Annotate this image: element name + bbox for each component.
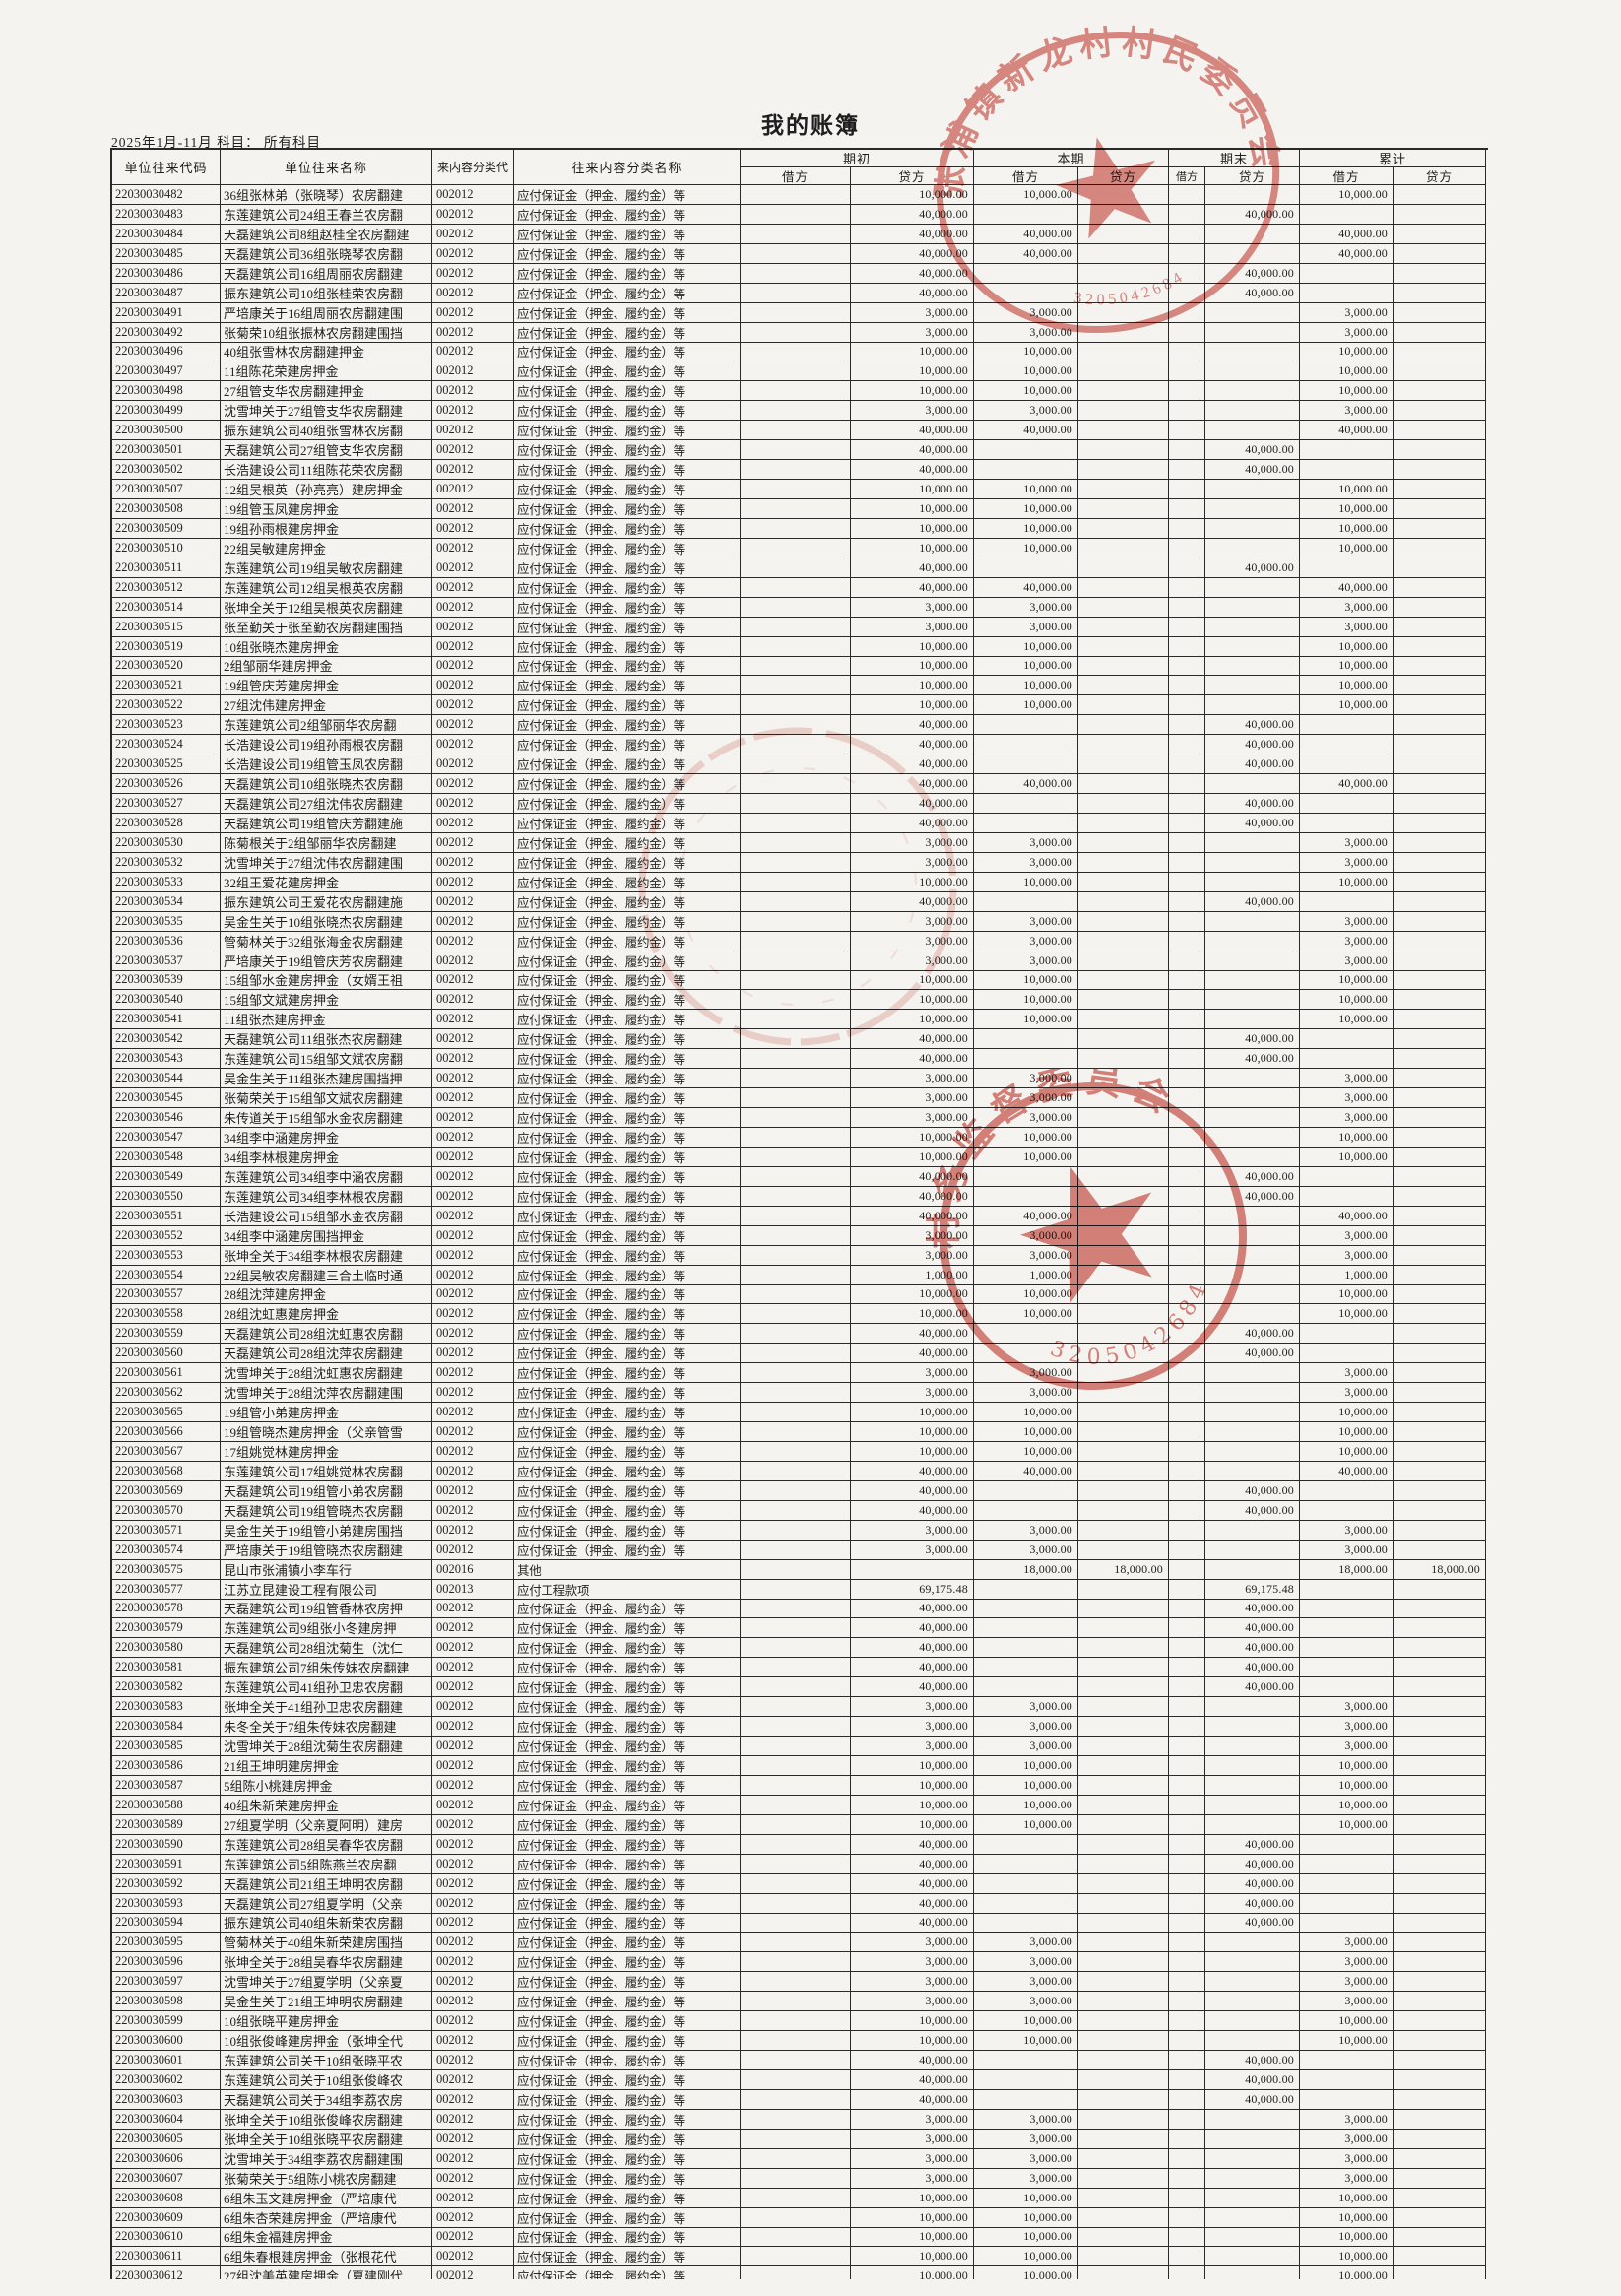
cell-unit-name: 朱传道关于15组邹水金农房翻建 bbox=[221, 1108, 432, 1128]
cell-ending-credit bbox=[1205, 932, 1300, 951]
cell-ending-debit bbox=[1169, 2149, 1205, 2169]
cell-cumulative-debit: 10,000.00 bbox=[1300, 990, 1394, 1010]
cell-opening-debit bbox=[741, 676, 851, 695]
col-header-cumulative-debit: 借方 bbox=[1300, 167, 1394, 185]
cell-ending-credit bbox=[1205, 1796, 1300, 1815]
cell-opening-debit bbox=[741, 2169, 851, 2189]
cell-ending-credit bbox=[1205, 2266, 1300, 2279]
cell-unit-code: 22030030568 bbox=[112, 1462, 221, 1481]
table-row: 22030030484天磊建筑公司8组赵桂全农房翻建002012应付保证金（押金… bbox=[112, 225, 1488, 244]
cell-current-debit: 3,000.00 bbox=[974, 303, 1078, 323]
cell-ending-debit bbox=[1169, 971, 1205, 991]
cell-ending-debit bbox=[1169, 1167, 1205, 1187]
cell-current-debit: 40,000.00 bbox=[974, 1462, 1078, 1481]
table-row: 22030030536管菊林关于32组张海金农房翻建002012应付保证金（押金… bbox=[112, 932, 1488, 951]
cell-class-name: 应付保证金（押金、履约金）等 bbox=[514, 381, 741, 401]
cell-opening-credit: 3,000.00 bbox=[851, 833, 974, 853]
cell-ending-debit bbox=[1169, 932, 1205, 951]
cell-current-debit bbox=[974, 1049, 1078, 1069]
cell-class-name: 应付保证金（押金、履约金）等 bbox=[514, 1363, 741, 1383]
table-body: 2203003048236组张林弟（张晓琴）农房翻建002012应付保证金（押金… bbox=[112, 185, 1488, 2279]
cell-unit-name: 天磊建筑公司28组沈菊生（沈仁 bbox=[221, 1638, 432, 1658]
cell-class-code: 002012 bbox=[432, 421, 514, 440]
cell-cumulative-credit bbox=[1394, 695, 1486, 715]
cell-unit-name: 东莲建筑公司9组张小冬建房押 bbox=[221, 1618, 432, 1638]
cell-ending-credit: 40,000.00 bbox=[1205, 1894, 1300, 1914]
table-row: 220300306116组朱春根建房押金（张根花代002012应付保证金（押金、… bbox=[112, 2247, 1488, 2266]
cell-unit-code: 22030030575 bbox=[112, 1560, 221, 1580]
cell-current-debit: 10,000.00 bbox=[974, 1148, 1078, 1167]
cell-class-code: 002012 bbox=[432, 303, 514, 323]
cell-ending-debit bbox=[1169, 1108, 1205, 1128]
cell-cumulative-credit bbox=[1394, 264, 1486, 284]
cell-unit-name: 天磊建筑公司28组沈萍农房翻建 bbox=[221, 1344, 432, 1363]
cell-class-name: 应付保证金（押金、履约金）等 bbox=[514, 676, 741, 695]
cell-cumulative-credit bbox=[1394, 2208, 1486, 2228]
cell-unit-code: 22030030552 bbox=[112, 1226, 221, 1246]
cell-class-code: 002012 bbox=[432, 2090, 514, 2110]
cell-current-credit bbox=[1078, 618, 1169, 637]
cell-current-debit: 40,000.00 bbox=[974, 421, 1078, 440]
cell-class-name: 应付保证金（押金、履约金）等 bbox=[514, 2031, 741, 2051]
cell-opening-credit: 10,000.00 bbox=[851, 1285, 974, 1305]
cell-opening-debit bbox=[741, 1992, 851, 2011]
cell-ending-credit bbox=[1205, 1088, 1300, 1108]
cell-opening-debit bbox=[741, 1049, 851, 1069]
cell-ending-credit bbox=[1205, 1442, 1300, 1462]
cell-opening-credit: 3,000.00 bbox=[851, 401, 974, 421]
cell-unit-name: 10组张晓杰建房押金 bbox=[221, 637, 432, 657]
cell-class-name: 应付保证金（押金、履约金）等 bbox=[514, 715, 741, 735]
cell-cumulative-credit bbox=[1394, 2149, 1486, 2169]
cell-cumulative-debit: 3,000.00 bbox=[1300, 1972, 1394, 1992]
cell-ending-credit bbox=[1205, 1010, 1300, 1029]
cell-current-credit bbox=[1078, 1874, 1169, 1894]
cell-opening-debit bbox=[741, 2149, 851, 2169]
cell-unit-name: 27组沈美英建房押金（夏建刚代 bbox=[221, 2266, 432, 2279]
cell-cumulative-credit bbox=[1394, 2189, 1486, 2208]
cell-class-name: 应付保证金（押金、履约金）等 bbox=[514, 2266, 741, 2279]
cell-ending-credit: 40,000.00 bbox=[1205, 440, 1300, 460]
cell-current-credit bbox=[1078, 1344, 1169, 1363]
cell-ending-credit bbox=[1205, 499, 1300, 519]
cell-cumulative-debit: 40,000.00 bbox=[1300, 578, 1394, 598]
cell-unit-name: 22组吴敏建房押金 bbox=[221, 539, 432, 558]
cell-opening-debit bbox=[741, 2228, 851, 2248]
cell-unit-name: 吴金生关于11组张杰建房围挡押 bbox=[221, 1069, 432, 1088]
cell-opening-debit bbox=[741, 323, 851, 343]
cell-ending-credit: 40,000.00 bbox=[1205, 1874, 1300, 1894]
table-row: 22030030583张坤全关于41组孙卫忠农房翻建002012应付保证金（押金… bbox=[112, 1697, 1488, 1717]
cell-cumulative-debit: 40,000.00 bbox=[1300, 225, 1394, 244]
cell-ending-credit bbox=[1205, 2169, 1300, 2189]
cell-cumulative-credit bbox=[1394, 1363, 1486, 1383]
cell-class-code: 002012 bbox=[432, 2149, 514, 2169]
cell-unit-code: 22030030532 bbox=[112, 853, 221, 873]
cell-class-name: 应付保证金（押金、履约金）等 bbox=[514, 2110, 741, 2130]
cell-unit-code: 22030030534 bbox=[112, 892, 221, 912]
cell-cumulative-debit: 3,000.00 bbox=[1300, 1933, 1394, 1952]
cell-opening-credit: 40,000.00 bbox=[851, 558, 974, 578]
cell-cumulative-debit bbox=[1300, 1658, 1394, 1677]
cell-current-credit bbox=[1078, 421, 1169, 440]
cell-cumulative-credit bbox=[1394, 578, 1486, 598]
table-row: 22030030500振东建筑公司40组张雪林农房翻002012应付保证金（押金… bbox=[112, 421, 1488, 440]
cell-current-debit: 40,000.00 bbox=[974, 244, 1078, 264]
cell-unit-code: 22030030611 bbox=[112, 2247, 221, 2266]
cell-cumulative-debit bbox=[1300, 715, 1394, 735]
cell-current-debit: 3,000.00 bbox=[974, 932, 1078, 951]
cell-class-name: 应付保证金（押金、履约金）等 bbox=[514, 1638, 741, 1658]
cell-ending-credit bbox=[1205, 833, 1300, 853]
cell-current-debit: 10,000.00 bbox=[974, 361, 1078, 381]
cell-current-debit: 10,000.00 bbox=[974, 1815, 1078, 1835]
cell-class-code: 002012 bbox=[432, 794, 514, 814]
cell-opening-credit: 3,000.00 bbox=[851, 1226, 974, 1246]
cell-opening-debit bbox=[741, 1403, 851, 1422]
cell-current-credit bbox=[1078, 1835, 1169, 1855]
cell-opening-credit: 40,000.00 bbox=[851, 460, 974, 480]
cell-class-name: 应付保证金（押金、履约金）等 bbox=[514, 735, 741, 754]
cell-class-name: 应付保证金（押金、履约金）等 bbox=[514, 1952, 741, 1972]
cell-current-credit bbox=[1078, 323, 1169, 343]
cell-current-credit bbox=[1078, 598, 1169, 618]
cell-opening-credit: 40,000.00 bbox=[851, 225, 974, 244]
cell-current-credit bbox=[1078, 519, 1169, 539]
cell-class-name: 应付保证金（押金、履约金）等 bbox=[514, 1796, 741, 1815]
cell-unit-name: 34组李中涵建房押金 bbox=[221, 1128, 432, 1148]
cell-ending-debit bbox=[1169, 912, 1205, 932]
cell-unit-code: 22030030578 bbox=[112, 1600, 221, 1619]
cell-ending-credit bbox=[1205, 1246, 1300, 1266]
table-row: 22030030492张菊荣10组张振林农房翻建围挡002012应付保证金（押金… bbox=[112, 323, 1488, 343]
table-header: 单位往来代码 单位往来名称 来内容分类代 往来内容分类名称 期初 本期 期末 累… bbox=[112, 150, 1488, 185]
cell-unit-name: 天磊建筑公司28组沈虹惠农房翻 bbox=[221, 1324, 432, 1344]
cell-opening-credit: 40,000.00 bbox=[851, 440, 974, 460]
cell-unit-code: 22030030604 bbox=[112, 2110, 221, 2130]
col-header-ending-debit: 借方 bbox=[1169, 167, 1205, 185]
cell-unit-name: 张菊荣关于5组陈小桃农房翻建 bbox=[221, 2169, 432, 2189]
cell-ending-debit bbox=[1169, 695, 1205, 715]
cell-cumulative-credit bbox=[1394, 1580, 1486, 1600]
table-row: 22030030595管菊林关于40组朱新荣建房围挡002012应付保证金（押金… bbox=[112, 1933, 1488, 1952]
cell-opening-credit: 10,000.00 bbox=[851, 1010, 974, 1029]
cell-current-debit: 3,000.00 bbox=[974, 323, 1078, 343]
table-row: 22030030512东莲建筑公司12组吴根英农房翻002012应付保证金（押金… bbox=[112, 578, 1488, 598]
cell-ending-credit bbox=[1205, 1933, 1300, 1952]
cell-current-credit bbox=[1078, 2070, 1169, 2090]
cell-class-code: 002012 bbox=[432, 1010, 514, 1029]
table-row: 2203003056619组管晓杰建房押金（父亲管雪002012应付保证金（押金… bbox=[112, 1422, 1488, 1442]
cell-current-credit bbox=[1078, 558, 1169, 578]
cell-opening-debit bbox=[741, 2189, 851, 2208]
cell-cumulative-debit: 10,000.00 bbox=[1300, 2266, 1394, 2279]
cell-current-credit bbox=[1078, 657, 1169, 677]
cell-unit-name: 6组朱杏荣建房押金（严培康代 bbox=[221, 2208, 432, 2228]
cell-class-name: 应付保证金（押金、履约金）等 bbox=[514, 1442, 741, 1462]
table-row: 2203003050919组孙雨根建房押金002012应付保证金（押金、履约金）… bbox=[112, 519, 1488, 539]
cell-ending-debit bbox=[1169, 2011, 1205, 2031]
cell-cumulative-credit bbox=[1394, 774, 1486, 794]
cell-class-name: 应付保证金（押金、履约金）等 bbox=[514, 1481, 741, 1501]
cell-cumulative-debit: 3,000.00 bbox=[1300, 1541, 1394, 1560]
cell-unit-code: 22030030547 bbox=[112, 1128, 221, 1148]
cell-opening-debit bbox=[741, 1677, 851, 1697]
cell-class-code: 002012 bbox=[432, 598, 514, 618]
cell-class-code: 002012 bbox=[432, 990, 514, 1010]
cell-cumulative-credit bbox=[1394, 735, 1486, 754]
cell-class-name: 应付保证金（押金、履约金）等 bbox=[514, 578, 741, 598]
cell-class-code: 002012 bbox=[432, 1088, 514, 1108]
cell-cumulative-credit bbox=[1394, 2266, 1486, 2279]
cell-unit-code: 22030030590 bbox=[112, 1835, 221, 1855]
table-row: 220300306096组朱杏荣建房押金（严培康代002012应付保证金（押金、… bbox=[112, 2208, 1488, 2228]
cell-current-debit: 10,000.00 bbox=[974, 1756, 1078, 1776]
cell-unit-code: 22030030491 bbox=[112, 303, 221, 323]
cell-opening-credit: 3,000.00 bbox=[851, 932, 974, 951]
cell-current-debit bbox=[974, 1501, 1078, 1521]
cell-unit-code: 22030030540 bbox=[112, 990, 221, 1010]
table-row: 22030030578天磊建筑公司19组管香林农房押002012应付保证金（押金… bbox=[112, 1600, 1488, 1619]
cell-ending-debit bbox=[1169, 1363, 1205, 1383]
cell-class-name: 应付保证金（押金、履约金）等 bbox=[514, 264, 741, 284]
table-row: 22030030594振东建筑公司40组朱新荣农房翻002012应付保证金（押金… bbox=[112, 1914, 1488, 1934]
cell-class-code: 002012 bbox=[432, 1049, 514, 1069]
table-row: 22030030560天磊建筑公司28组沈萍农房翻建002012应付保证金（押金… bbox=[112, 1344, 1488, 1363]
cell-opening-debit bbox=[741, 578, 851, 598]
cell-class-code: 002012 bbox=[432, 1266, 514, 1285]
cell-current-debit: 3,000.00 bbox=[974, 912, 1078, 932]
cell-opening-credit: 10,000.00 bbox=[851, 381, 974, 401]
cell-unit-name: 沈雪坤关于28组沈萍农房翻建围 bbox=[221, 1383, 432, 1403]
cell-cumulative-credit bbox=[1394, 1422, 1486, 1442]
cell-opening-debit bbox=[741, 460, 851, 480]
cell-ending-debit bbox=[1169, 1541, 1205, 1560]
cell-ending-credit bbox=[1205, 637, 1300, 657]
cell-cumulative-credit bbox=[1394, 1226, 1486, 1246]
cell-unit-name: 天磊建筑公司36组张晓琴农房翻 bbox=[221, 244, 432, 264]
cell-current-credit bbox=[1078, 695, 1169, 715]
cell-unit-code: 22030030558 bbox=[112, 1304, 221, 1324]
cell-class-name: 应付保证金（押金、履约金）等 bbox=[514, 284, 741, 303]
cell-current-credit bbox=[1078, 1952, 1169, 1972]
cell-current-debit: 10,000.00 bbox=[974, 2247, 1078, 2266]
cell-cumulative-debit bbox=[1300, 264, 1394, 284]
cell-current-debit: 3,000.00 bbox=[974, 1108, 1078, 1128]
cell-cumulative-debit: 3,000.00 bbox=[1300, 401, 1394, 421]
cell-opening-debit bbox=[741, 2011, 851, 2031]
cell-unit-code: 22030030566 bbox=[112, 1422, 221, 1442]
cell-cumulative-debit: 10,000.00 bbox=[1300, 519, 1394, 539]
cell-class-code: 002012 bbox=[432, 2247, 514, 2266]
cell-class-name: 应付保证金（押金、履约金）等 bbox=[514, 1266, 741, 1285]
cell-unit-code: 22030030533 bbox=[112, 873, 221, 892]
cell-ending-credit bbox=[1205, 1363, 1300, 1383]
cell-opening-debit bbox=[741, 1226, 851, 1246]
cell-opening-credit: 40,000.00 bbox=[851, 1855, 974, 1874]
cell-class-code: 002012 bbox=[432, 1324, 514, 1344]
cell-cumulative-credit bbox=[1394, 225, 1486, 244]
cell-opening-credit: 3,000.00 bbox=[851, 303, 974, 323]
table-row: 22030030483东莲建筑公司24组王春兰农房翻002012应付保证金（押金… bbox=[112, 205, 1488, 225]
cell-ending-debit bbox=[1169, 1933, 1205, 1952]
cell-unit-name: 天磊建筑公司11组张杰农房翻建 bbox=[221, 1029, 432, 1049]
cell-unit-name: 19组孙雨根建房押金 bbox=[221, 519, 432, 539]
cell-current-credit bbox=[1078, 284, 1169, 303]
cell-current-debit: 10,000.00 bbox=[974, 480, 1078, 499]
cell-unit-name: 东莲建筑公司24组王春兰农房翻 bbox=[221, 205, 432, 225]
cell-opening-credit: 10,000.00 bbox=[851, 361, 974, 381]
cell-current-debit: 10,000.00 bbox=[974, 539, 1078, 558]
cell-cumulative-credit bbox=[1394, 1933, 1486, 1952]
cell-ending-debit bbox=[1169, 1677, 1205, 1697]
col-group-ending: 期末 bbox=[1169, 150, 1300, 167]
table-row: 22030030546朱传道关于15组邹水金农房翻建002012应付保证金（押金… bbox=[112, 1108, 1488, 1128]
cell-cumulative-credit bbox=[1394, 2130, 1486, 2149]
cell-ending-debit bbox=[1169, 401, 1205, 421]
cell-opening-credit: 3,000.00 bbox=[851, 1246, 974, 1266]
table-row: 22030030601东莲建筑公司关于10组张晓平农002012应付保证金（押金… bbox=[112, 2051, 1488, 2070]
cell-unit-code: 22030030520 bbox=[112, 657, 221, 677]
cell-current-debit: 10,000.00 bbox=[974, 1285, 1078, 1305]
cell-unit-code: 22030030526 bbox=[112, 774, 221, 794]
cell-ending-credit bbox=[1205, 2110, 1300, 2130]
cell-ending-credit: 40,000.00 bbox=[1205, 205, 1300, 225]
cell-cumulative-credit bbox=[1394, 1010, 1486, 1029]
cell-unit-name: 吴金生关于21组王坤明农房翻建 bbox=[221, 1992, 432, 2011]
cell-opening-credit: 40,000.00 bbox=[851, 264, 974, 284]
cell-opening-debit bbox=[741, 598, 851, 618]
table-row: 2203003055234组李中涵建房围挡押金002012应付保证金（押金、履约… bbox=[112, 1226, 1488, 1246]
cell-cumulative-debit: 3,000.00 bbox=[1300, 1697, 1394, 1717]
cell-ending-debit bbox=[1169, 1560, 1205, 1580]
cell-unit-code: 22030030569 bbox=[112, 1481, 221, 1501]
cell-unit-name: 长浩建设公司15组邹水金农房翻 bbox=[221, 1207, 432, 1226]
cell-class-code: 002012 bbox=[432, 2208, 514, 2228]
cell-current-debit: 10,000.00 bbox=[974, 676, 1078, 695]
cell-current-credit bbox=[1078, 814, 1169, 833]
cell-ending-debit bbox=[1169, 1914, 1205, 1934]
table-row: 2203003061227组沈美英建房押金（夏建刚代002012应付保证金（押金… bbox=[112, 2266, 1488, 2279]
cell-cumulative-credit bbox=[1394, 2247, 1486, 2266]
cell-current-debit: 3,000.00 bbox=[974, 401, 1078, 421]
cell-class-name: 应付保证金（押金、履约金）等 bbox=[514, 2247, 741, 2266]
cell-opening-debit bbox=[741, 1207, 851, 1226]
cell-cumulative-credit bbox=[1394, 598, 1486, 618]
cell-ending-debit bbox=[1169, 440, 1205, 460]
cell-unit-code: 22030030580 bbox=[112, 1638, 221, 1658]
cell-cumulative-credit bbox=[1394, 1266, 1486, 1285]
cell-class-code: 002012 bbox=[432, 695, 514, 715]
cell-current-debit bbox=[974, 1855, 1078, 1874]
cell-class-code: 002012 bbox=[432, 735, 514, 754]
cell-opening-debit bbox=[741, 1167, 851, 1187]
col-header-ending-credit: 贷方 bbox=[1205, 167, 1300, 185]
cell-class-code: 002012 bbox=[432, 1442, 514, 1462]
cell-class-name: 应付保证金（押金、履约金）等 bbox=[514, 637, 741, 657]
table-row: 2203003049640组张雪林农房翻建押金002012应付保证金（押金、履约… bbox=[112, 343, 1488, 362]
cell-opening-debit bbox=[741, 205, 851, 225]
cell-ending-debit bbox=[1169, 1422, 1205, 1442]
cell-unit-code: 22030030507 bbox=[112, 480, 221, 499]
cell-current-debit: 3,000.00 bbox=[974, 1737, 1078, 1756]
cell-current-credit bbox=[1078, 2090, 1169, 2110]
cell-unit-code: 22030030554 bbox=[112, 1266, 221, 1285]
cell-ending-credit bbox=[1205, 1226, 1300, 1246]
cell-class-name: 应付保证金（押金、履约金）等 bbox=[514, 1010, 741, 1029]
cell-class-code: 002012 bbox=[432, 519, 514, 539]
cell-current-debit: 18,000.00 bbox=[974, 1560, 1078, 1580]
cell-current-credit bbox=[1078, 735, 1169, 754]
cell-current-credit bbox=[1078, 1128, 1169, 1148]
cell-ending-credit: 40,000.00 bbox=[1205, 735, 1300, 754]
table-row: 22030030501天磊建筑公司27组管支华农房翻002012应付保证金（押金… bbox=[112, 440, 1488, 460]
cell-class-name: 应付保证金（押金、履约金）等 bbox=[514, 1717, 741, 1737]
cell-opening-credit: 10,000.00 bbox=[851, 185, 974, 205]
cell-class-name: 应付保证金（押金、履约金）等 bbox=[514, 1972, 741, 1992]
cell-class-code: 002012 bbox=[432, 1952, 514, 1972]
cell-current-credit bbox=[1078, 1010, 1169, 1029]
cell-unit-code: 22030030482 bbox=[112, 185, 221, 205]
cell-current-debit: 10,000.00 bbox=[974, 185, 1078, 205]
cell-unit-name: 振东建筑公司7组朱传妹农房翻建 bbox=[221, 1658, 432, 1677]
cell-ending-credit bbox=[1205, 2130, 1300, 2149]
cell-unit-code: 22030030570 bbox=[112, 1501, 221, 1521]
cell-class-code: 002016 bbox=[432, 1560, 514, 1580]
cell-class-name: 应付工程款项 bbox=[514, 1580, 741, 1600]
cell-class-name: 应付保证金（押金、履约金）等 bbox=[514, 1403, 741, 1422]
cell-class-code: 002012 bbox=[432, 2011, 514, 2031]
cell-ending-credit bbox=[1205, 1403, 1300, 1422]
cell-ending-credit: 40,000.00 bbox=[1205, 1187, 1300, 1207]
cell-cumulative-debit bbox=[1300, 794, 1394, 814]
cell-cumulative-credit bbox=[1394, 1638, 1486, 1658]
cell-unit-code: 22030030548 bbox=[112, 1148, 221, 1167]
cell-current-debit: 10,000.00 bbox=[974, 2011, 1078, 2031]
cell-unit-code: 22030030545 bbox=[112, 1088, 221, 1108]
cell-cumulative-credit bbox=[1394, 1069, 1486, 1088]
cell-ending-debit bbox=[1169, 2169, 1205, 2189]
cell-ending-credit: 40,000.00 bbox=[1205, 558, 1300, 578]
cell-class-code: 002012 bbox=[432, 1697, 514, 1717]
cell-cumulative-debit bbox=[1300, 284, 1394, 303]
cell-unit-code: 22030030612 bbox=[112, 2266, 221, 2279]
cell-cumulative-credit bbox=[1394, 1600, 1486, 1619]
cell-opening-debit bbox=[741, 1088, 851, 1108]
cell-ending-credit: 40,000.00 bbox=[1205, 1855, 1300, 1874]
cell-class-code: 002012 bbox=[432, 1246, 514, 1266]
cell-ending-debit bbox=[1169, 2051, 1205, 2070]
cell-opening-credit: 40,000.00 bbox=[851, 735, 974, 754]
cell-opening-debit bbox=[741, 1324, 851, 1344]
cell-class-code: 002012 bbox=[432, 480, 514, 499]
cell-current-debit: 10,000.00 bbox=[974, 657, 1078, 677]
cell-opening-credit: 40,000.00 bbox=[851, 715, 974, 735]
cell-cumulative-debit: 3,000.00 bbox=[1300, 1108, 1394, 1128]
cell-class-code: 002012 bbox=[432, 1737, 514, 1756]
cell-ending-credit bbox=[1205, 657, 1300, 677]
cell-current-debit: 3,000.00 bbox=[974, 1383, 1078, 1403]
cell-ending-credit bbox=[1205, 421, 1300, 440]
cell-cumulative-credit bbox=[1394, 2070, 1486, 2090]
cell-opening-debit bbox=[741, 1187, 851, 1207]
cell-current-debit: 3,000.00 bbox=[974, 1226, 1078, 1246]
cell-unit-code: 22030030607 bbox=[112, 2169, 221, 2189]
cell-unit-name: 沈雪坤关于28组沈虹惠农房翻建 bbox=[221, 1363, 432, 1383]
cell-current-debit bbox=[974, 1481, 1078, 1501]
cell-class-code: 002012 bbox=[432, 1207, 514, 1226]
cell-ending-debit bbox=[1169, 794, 1205, 814]
